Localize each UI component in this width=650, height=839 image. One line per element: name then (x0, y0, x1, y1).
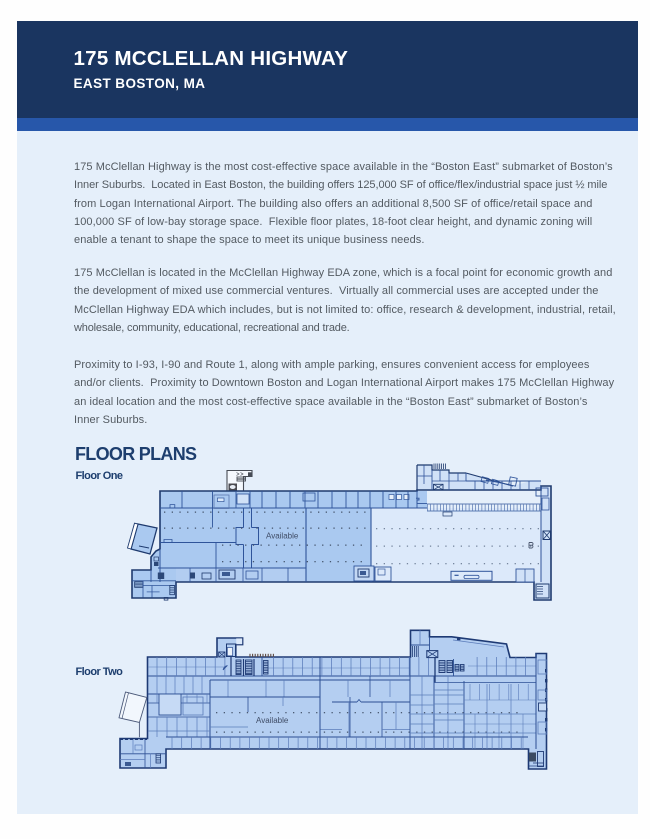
svg-text:Available: Available (256, 716, 289, 725)
svg-text:Available: Available (266, 532, 299, 541)
